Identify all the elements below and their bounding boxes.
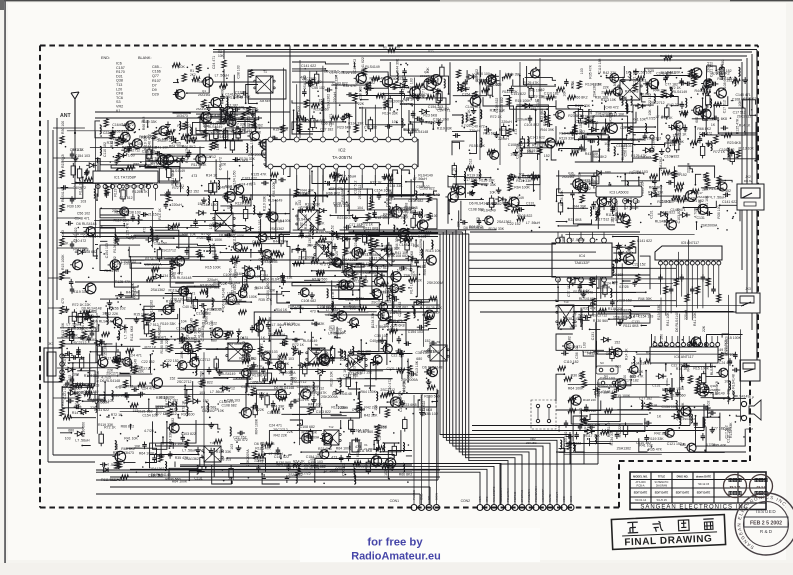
svg-text:10K: 10K <box>283 362 290 366</box>
svg-text:10K: 10K <box>269 288 276 292</box>
svg-text:C17 512: C17 512 <box>723 100 727 113</box>
svg-text:R14 1K: R14 1K <box>276 308 288 312</box>
svg-text:C121 152: C121 152 <box>343 373 358 377</box>
svg-text:RLS4149: RLS4149 <box>268 199 283 203</box>
svg-text:C22 152: C22 152 <box>233 435 246 439</box>
svg-text:EDIT DATE: EDIT DATE <box>634 491 648 495</box>
svg-text:C154 103: C154 103 <box>75 154 90 158</box>
svg-text:ANT: ANT <box>60 113 71 119</box>
svg-text:2SK2009A: 2SK2009A <box>401 378 418 382</box>
svg-text:C40 472: C40 472 <box>605 105 618 109</box>
svg-text:2SA1362: 2SA1362 <box>198 93 211 97</box>
svg-text:Q30 2SC2712: Q30 2SC2712 <box>676 417 695 421</box>
svg-text:IC1 TA7358P: IC1 TA7358P <box>114 176 137 180</box>
svg-text:R15 100K: R15 100K <box>515 99 531 103</box>
svg-text:D9: D9 <box>152 88 157 92</box>
svg-text:R41 10K: R41 10K <box>139 135 153 139</box>
svg-text:C108 682: C108 682 <box>393 254 408 258</box>
svg-text:R42 22K: R42 22K <box>287 323 301 327</box>
svg-text:R72 1K: R72 1K <box>370 181 382 185</box>
svg-text:C103 822: C103 822 <box>420 187 435 191</box>
svg-text:R134 33K: R134 33K <box>334 204 350 208</box>
svg-text:C154 103: C154 103 <box>662 405 677 409</box>
svg-text:SW.EXT.ANT: SW.EXT.ANT <box>95 313 99 330</box>
svg-text:680: 680 <box>680 443 686 447</box>
svg-text:RLS4149: RLS4149 <box>61 187 65 202</box>
svg-text:R72 1K: R72 1K <box>104 425 116 429</box>
svg-text:R66 8K2: R66 8K2 <box>121 447 135 451</box>
svg-text:R130 560: R130 560 <box>424 394 439 398</box>
svg-text:220uH: 220uH <box>338 406 349 410</box>
svg-text:R66 8K2: R66 8K2 <box>423 262 427 276</box>
svg-text:10K: 10K <box>738 100 742 107</box>
svg-text:R111 6K8: R111 6K8 <box>661 71 676 75</box>
svg-text:22K: 22K <box>62 242 69 246</box>
svg-text:C141 622: C141 622 <box>515 143 519 158</box>
svg-text:R35 47K: R35 47K <box>588 64 592 78</box>
svg-text:ATS-909: ATS-909 <box>635 480 646 484</box>
svg-text:C77 182: C77 182 <box>567 284 571 297</box>
svg-text:SANGEAN ELECTRONICS INC.: SANGEAN ELECTRONICS INC. <box>640 505 751 511</box>
svg-text:C56 102: C56 102 <box>267 411 280 415</box>
svg-text:R & D: R & D <box>760 529 773 534</box>
svg-text:103: 103 <box>410 78 414 84</box>
svg-text:R111 6K8: R111 6K8 <box>623 324 638 328</box>
svg-text:R15 100K: R15 100K <box>229 234 245 238</box>
svg-text:R64 100K: R64 100K <box>361 390 377 394</box>
svg-text:T2: T2 <box>627 75 631 79</box>
svg-text:R41 10K: R41 10K <box>529 88 543 92</box>
svg-text:680: 680 <box>158 308 164 312</box>
svg-text:2SC2712: 2SC2712 <box>310 386 325 390</box>
svg-text:473: 473 <box>329 325 335 329</box>
svg-text:JK3: JK3 <box>745 287 751 291</box>
svg-text:21.35K2: 21.35K2 <box>364 447 375 451</box>
svg-text:R119 33K: R119 33K <box>160 395 176 399</box>
svg-text:C56 102: C56 102 <box>112 307 125 311</box>
svg-text:R42 22K: R42 22K <box>603 71 617 75</box>
svg-text:T11: T11 <box>210 441 215 445</box>
svg-text:R117 33K: R117 33K <box>717 77 733 81</box>
svg-text:C121 152: C121 152 <box>63 384 67 399</box>
svg-text:R44 39K: R44 39K <box>541 128 555 132</box>
svg-text:TA-2057N: TA-2057N <box>332 155 352 160</box>
svg-text:C131: C131 <box>650 210 654 218</box>
svg-text:C141 622: C141 622 <box>378 290 393 294</box>
svg-text:R119 33K: R119 33K <box>437 127 453 131</box>
svg-text:R117 33K: R117 33K <box>585 423 601 427</box>
svg-text:R64 100K: R64 100K <box>514 185 530 189</box>
svg-text:22K: 22K <box>571 82 575 89</box>
svg-text:22K: 22K <box>85 303 92 307</box>
svg-text:DH: DH <box>672 143 676 147</box>
svg-text:R130 560: R130 560 <box>160 338 164 353</box>
svg-text:2SC2712: 2SC2712 <box>650 101 665 105</box>
svg-text:R23 6K8: R23 6K8 <box>727 141 741 145</box>
svg-text:R66 8K2: R66 8K2 <box>142 117 146 131</box>
svg-text:BTGTIND: BTGTIND <box>520 490 524 502</box>
svg-text:680: 680 <box>605 170 611 174</box>
svg-text:C38 103: C38 103 <box>127 210 140 214</box>
svg-text:03.2.2: 03.2.2 <box>757 486 766 490</box>
svg-text:R41 10K: R41 10K <box>693 312 697 326</box>
svg-text:C24 471: C24 471 <box>212 56 216 69</box>
svg-text:22K: 22K <box>358 102 365 106</box>
svg-text:2SC2712: 2SC2712 <box>177 380 192 384</box>
svg-text:C110 182: C110 182 <box>571 149 586 153</box>
svg-text:2SC2712: 2SC2712 <box>72 341 87 345</box>
svg-text:152: 152 <box>613 315 619 319</box>
svg-text:R23 6K8: R23 6K8 <box>391 324 405 328</box>
svg-text:R15 100K: R15 100K <box>104 342 108 358</box>
svg-text:R119 33K: R119 33K <box>479 179 495 183</box>
svg-text:C164 1/50: C164 1/50 <box>233 170 237 186</box>
svg-text:C24 471: C24 471 <box>269 423 282 427</box>
svg-text:'04./6.15: '04./6.15 <box>656 498 667 502</box>
svg-text:R42 22K: R42 22K <box>654 431 668 435</box>
svg-text:R134 33K: R134 33K <box>216 450 232 454</box>
svg-text:R134 33K: R134 33K <box>239 157 255 161</box>
svg-text:T7: T7 <box>236 338 240 342</box>
svg-text:BLANK:: BLANK: <box>138 56 152 60</box>
svg-text:C103 822: C103 822 <box>495 98 499 113</box>
svg-text:R15 100K: R15 100K <box>72 326 88 330</box>
svg-text:104: 104 <box>604 142 610 146</box>
svg-text:R134 33K: R134 33K <box>234 261 238 277</box>
svg-text:R15 100K: R15 100K <box>615 394 631 398</box>
svg-text:2SK2009A: 2SK2009A <box>427 281 444 285</box>
svg-text:10K: 10K <box>490 191 497 195</box>
svg-text:220uH: 220uH <box>517 118 528 122</box>
svg-text:EDIT DATE: EDIT DATE <box>676 491 690 495</box>
svg-text:C148 471: C148 471 <box>399 243 414 247</box>
svg-text:L7 .56uH: L7 .56uH <box>215 73 230 77</box>
svg-text:R113 10K: R113 10K <box>304 213 308 229</box>
svg-text:IC3 LA5003: IC3 LA5003 <box>610 191 629 195</box>
svg-text:C148 471: C148 471 <box>465 105 480 109</box>
svg-text:R64 100K: R64 100K <box>330 331 346 335</box>
svg-text:103: 103 <box>580 68 584 74</box>
svg-text:C142: C142 <box>557 425 561 432</box>
svg-text:'99.12.15: '99.12.15 <box>698 482 710 486</box>
svg-text:VDD: VDD <box>562 496 566 502</box>
svg-text:680: 680 <box>416 357 422 361</box>
svg-text:C56 102: C56 102 <box>624 143 628 156</box>
svg-text:D6 RLS4148: D6 RLS4148 <box>76 222 96 226</box>
svg-text:R42 22K: R42 22K <box>274 434 288 438</box>
svg-text:L7 .56uH: L7 .56uH <box>124 324 128 339</box>
svg-text:R23 6K8: R23 6K8 <box>540 109 544 123</box>
svg-text:R72 1K: R72 1K <box>292 343 304 347</box>
svg-text:R117 33K: R117 33K <box>191 163 207 167</box>
svg-text:103: 103 <box>80 200 86 204</box>
svg-text:152: 152 <box>544 154 550 158</box>
svg-text:R125 47K: R125 47K <box>735 118 739 134</box>
svg-text:R66 8K2: R66 8K2 <box>121 424 135 428</box>
svg-text:R15 100K: R15 100K <box>469 144 485 148</box>
svg-text:220uH: 220uH <box>254 458 265 462</box>
svg-text:D6 RLS4148: D6 RLS4148 <box>151 473 171 477</box>
svg-text:R130 560: R130 560 <box>593 319 608 323</box>
svg-text:2SC2712: 2SC2712 <box>136 367 151 371</box>
svg-text:FEB 2 5 2002: FEB 2 5 2002 <box>750 521 782 527</box>
svg-text:T12: T12 <box>329 425 334 429</box>
svg-text:FM.MIX: FM.MIX <box>219 233 229 237</box>
svg-text:473: 473 <box>589 351 595 355</box>
svg-text:R134 33K: R134 33K <box>560 190 564 206</box>
svg-text:D6 RLS4148: D6 RLS4148 <box>82 307 102 311</box>
svg-text:R41 10K: R41 10K <box>666 312 670 326</box>
svg-text:2SC2712: 2SC2712 <box>161 249 176 253</box>
svg-text:473: 473 <box>203 122 207 128</box>
svg-text:2SC2712: 2SC2712 <box>324 70 339 74</box>
svg-text:1K: 1K <box>626 71 631 75</box>
svg-text:C77 182: C77 182 <box>320 127 333 131</box>
svg-text:2SC2712: 2SC2712 <box>737 115 752 119</box>
svg-text:R119 33K: R119 33K <box>73 290 89 294</box>
svg-text:R66 8K2: R66 8K2 <box>177 124 191 128</box>
svg-text:R14 1K: R14 1K <box>625 348 629 360</box>
svg-text:R134 33K: R134 33K <box>657 304 661 320</box>
svg-text:R119 33K: R119 33K <box>583 409 596 413</box>
svg-text:R66 8K2: R66 8K2 <box>182 145 196 149</box>
svg-text:C103 822: C103 822 <box>316 410 331 414</box>
svg-text:L7 .56uH: L7 .56uH <box>526 221 541 225</box>
svg-text:R117 33K: R117 33K <box>573 290 589 294</box>
svg-text:152: 152 <box>170 376 176 380</box>
svg-text:C38 103: C38 103 <box>374 334 387 338</box>
svg-text:R44 39K: R44 39K <box>402 380 406 394</box>
svg-text:C77 182: C77 182 <box>155 412 168 416</box>
svg-text:C103 822: C103 822 <box>524 123 539 127</box>
svg-text:C131: C131 <box>240 336 248 340</box>
svg-text:C24 471: C24 471 <box>129 353 142 357</box>
svg-text:T4 MW.ANT: T4 MW.ANT <box>300 205 316 209</box>
svg-text:89.2.25: 89.2.25 <box>730 486 741 490</box>
svg-text:152: 152 <box>614 341 620 345</box>
svg-text:C22 152: C22 152 <box>141 360 154 364</box>
svg-text:GND: GND <box>569 496 573 502</box>
svg-text:C85...: C85... <box>152 65 162 69</box>
svg-text:T8: T8 <box>314 343 318 347</box>
svg-text:R72 1K: R72 1K <box>111 413 123 417</box>
svg-text:R41 10K: R41 10K <box>124 437 138 441</box>
svg-text:C154 103: C154 103 <box>638 314 653 318</box>
svg-text:R130 560: R130 560 <box>358 430 373 434</box>
svg-text:for free by: for free by <box>367 537 423 549</box>
svg-text:2SC2712: 2SC2712 <box>420 74 433 78</box>
svg-text:R72: R72 <box>428 50 434 54</box>
svg-text:L7 .56uH: L7 .56uH <box>75 439 90 443</box>
svg-text:104: 104 <box>278 219 284 223</box>
svg-text:C56 102: C56 102 <box>575 345 579 358</box>
svg-text:R35 47K: R35 47K <box>175 456 189 460</box>
svg-text:R30 100: R30 100 <box>477 72 490 76</box>
svg-text:R72 1K: R72 1K <box>72 303 84 307</box>
svg-text:END:: END: <box>101 56 110 60</box>
svg-text:RLS4149: RLS4149 <box>221 372 236 376</box>
svg-text:220uH: 220uH <box>501 120 512 124</box>
svg-text:2SC2712: 2SC2712 <box>358 185 362 200</box>
svg-text:2SC2712: 2SC2712 <box>400 102 413 106</box>
svg-text:R23 6K8: R23 6K8 <box>483 132 497 136</box>
svg-text:R130 560: R130 560 <box>314 108 329 112</box>
svg-text:C141 622: C141 622 <box>511 92 526 96</box>
svg-text:C22 152: C22 152 <box>154 241 167 245</box>
svg-text:473: 473 <box>182 114 188 118</box>
svg-text:C108 682: C108 682 <box>500 97 504 112</box>
svg-text:R64 100K: R64 100K <box>272 181 276 197</box>
svg-text:C131: C131 <box>697 216 705 220</box>
svg-text:C38 103: C38 103 <box>436 107 449 111</box>
svg-text:C77 182: C77 182 <box>626 379 639 383</box>
svg-text:FM.L/AM.H: FM.L/AM.H <box>506 488 510 502</box>
svg-text:R119 33K: R119 33K <box>559 137 575 141</box>
svg-text:22K: 22K <box>258 408 265 412</box>
svg-text:C110 182: C110 182 <box>250 381 265 385</box>
svg-text:S4: S4 <box>604 374 608 378</box>
svg-text:R72 1K: R72 1K <box>713 150 725 154</box>
svg-text:T5: T5 <box>322 237 326 241</box>
svg-text:D6 RLS4148: D6 RLS4148 <box>422 366 442 370</box>
svg-text:T14: T14 <box>354 350 359 354</box>
svg-text:R15 100K: R15 100K <box>205 265 221 269</box>
svg-text:VER: VER <box>478 496 482 502</box>
svg-text:CON2: CON2 <box>461 499 471 503</box>
svg-text:22K: 22K <box>220 163 227 167</box>
svg-text:R72 1K: R72 1K <box>145 346 157 350</box>
svg-text:10K: 10K <box>179 65 186 69</box>
svg-text:473: 473 <box>115 385 121 389</box>
svg-text:2SA1362: 2SA1362 <box>151 288 165 292</box>
svg-text:'00.01.14: '00.01.14 <box>635 498 647 502</box>
svg-text:T13 LW.OSC: T13 LW.OSC <box>374 244 390 248</box>
svg-text:R30 100: R30 100 <box>595 96 608 100</box>
svg-text:AM.MIX: AM.MIX <box>260 99 271 103</box>
svg-text:C108 682: C108 682 <box>301 299 316 303</box>
svg-text:RadioAmateur.eu: RadioAmateur.eu <box>351 551 441 563</box>
svg-text:2SA1362: 2SA1362 <box>497 220 511 224</box>
svg-text:2K2: 2K2 <box>190 73 196 77</box>
svg-text:JK1: JK1 <box>48 342 54 346</box>
svg-text:R23 6K8: R23 6K8 <box>419 408 433 412</box>
svg-text:C141 622: C141 622 <box>74 227 78 242</box>
svg-text:D6 RLS4148: D6 RLS4148 <box>100 379 120 383</box>
svg-text:4.7/25: 4.7/25 <box>461 124 471 128</box>
svg-text:D6 RLS4148: D6 RLS4148 <box>274 386 294 390</box>
svg-text:R42 22K: R42 22K <box>364 413 378 417</box>
svg-text:DC.6v: DC.6v <box>744 179 753 183</box>
svg-text:R134 33K: R134 33K <box>246 130 262 134</box>
svg-text:C141 622: C141 622 <box>301 64 316 68</box>
svg-text:R30 100: R30 100 <box>67 204 80 208</box>
svg-text:R14 1K: R14 1K <box>409 281 413 293</box>
svg-text:R113 10K: R113 10K <box>426 249 442 253</box>
svg-text:103: 103 <box>73 373 79 377</box>
svg-text:1K: 1K <box>343 368 347 373</box>
svg-text:R41 10K: R41 10K <box>632 118 646 122</box>
svg-text:RLS4149: RLS4149 <box>208 125 223 129</box>
svg-text:C164 1/50: C164 1/50 <box>112 123 128 127</box>
svg-text:L7 .56uH: L7 .56uH <box>182 449 197 453</box>
svg-text:R125 47K: R125 47K <box>631 154 647 158</box>
svg-text:C22 152: C22 152 <box>165 359 178 363</box>
svg-text:R5: R5 <box>383 46 387 50</box>
svg-text:EDIT DATE: EDIT DATE <box>697 491 711 495</box>
svg-text:R117 33K: R117 33K <box>128 142 144 146</box>
svg-text:C108 682: C108 682 <box>222 404 237 408</box>
svg-text:2SA1362: 2SA1362 <box>617 446 631 450</box>
svg-text:2SK2009A: 2SK2009A <box>321 395 338 399</box>
svg-text:10K: 10K <box>392 120 399 124</box>
svg-text:DWG NO.: DWG NO. <box>677 474 689 478</box>
svg-text:R118 22K: R118 22K <box>583 398 596 402</box>
svg-text:EDIT DATE: EDIT DATE <box>655 491 669 495</box>
svg-text:4.7/25: 4.7/25 <box>619 285 629 289</box>
svg-text:PCB-A: PCB-A <box>637 483 645 487</box>
svg-text:C131: C131 <box>591 332 595 340</box>
svg-text:10K: 10K <box>648 109 652 116</box>
svg-text:ML.L/LW.H: ML.L/LW.H <box>499 488 503 502</box>
svg-text:R42 22K: R42 22K <box>364 406 378 410</box>
svg-text:220uH: 220uH <box>600 285 611 289</box>
svg-text:IC6 ANT117: IC6 ANT117 <box>674 355 693 359</box>
svg-text:1K: 1K <box>254 286 259 290</box>
svg-text:104: 104 <box>357 206 363 210</box>
svg-text:1K: 1K <box>657 414 662 418</box>
svg-text:22K: 22K <box>107 368 114 372</box>
svg-text:TGTIND: TGTIND <box>513 492 517 502</box>
svg-text:TA8132F: TA8132F <box>574 261 590 265</box>
svg-text:680: 680 <box>133 162 139 166</box>
svg-text:2SA1020Y: 2SA1020Y <box>697 195 711 199</box>
svg-text:R15 100K: R15 100K <box>725 336 741 340</box>
svg-text:C154 103: C154 103 <box>408 330 423 334</box>
svg-text:S.P: S.P <box>749 396 754 400</box>
svg-text:R119 33K: R119 33K <box>263 195 267 211</box>
svg-text:2SC2712: 2SC2712 <box>157 139 172 143</box>
svg-text:C164 1/50: C164 1/50 <box>236 376 252 380</box>
svg-text:R44 39K: R44 39K <box>403 128 417 132</box>
svg-text:C110 182: C110 182 <box>149 300 153 315</box>
svg-text:IC5 AN7117: IC5 AN7117 <box>681 241 699 245</box>
svg-text:RLS4149: RLS4149 <box>481 209 496 213</box>
svg-text:S3: S3 <box>600 361 604 365</box>
svg-text:1K: 1K <box>411 271 416 275</box>
svg-text:22K: 22K <box>591 177 595 184</box>
svg-text:220uH: 220uH <box>469 129 480 133</box>
svg-text:DIAGRAM: DIAGRAM <box>656 484 667 487</box>
svg-text:C103 822: C103 822 <box>564 431 568 446</box>
svg-text:STB: STB <box>485 496 489 502</box>
svg-text:C38 103: C38 103 <box>237 65 241 78</box>
svg-text:TITLE: TITLE <box>658 474 665 478</box>
svg-text:473: 473 <box>514 129 518 135</box>
svg-text:104: 104 <box>181 320 187 324</box>
svg-text:152: 152 <box>302 386 308 390</box>
svg-text:R64 100K: R64 100K <box>255 418 259 434</box>
svg-text:2SA1362: 2SA1362 <box>327 94 331 108</box>
svg-text:C148 471: C148 471 <box>219 400 234 404</box>
svg-text:AF.OUT: AF.OUT <box>555 492 559 502</box>
svg-text:POWER/ON: POWER/ON <box>534 486 538 502</box>
svg-text:R30 100: R30 100 <box>717 205 721 218</box>
svg-text:2SA1362: 2SA1362 <box>270 227 284 231</box>
svg-text:C166: C166 <box>152 70 161 74</box>
svg-text:R44 39K: R44 39K <box>395 58 399 72</box>
svg-text:S2: S2 <box>645 131 649 135</box>
svg-text:R14 1K: R14 1K <box>63 353 67 365</box>
